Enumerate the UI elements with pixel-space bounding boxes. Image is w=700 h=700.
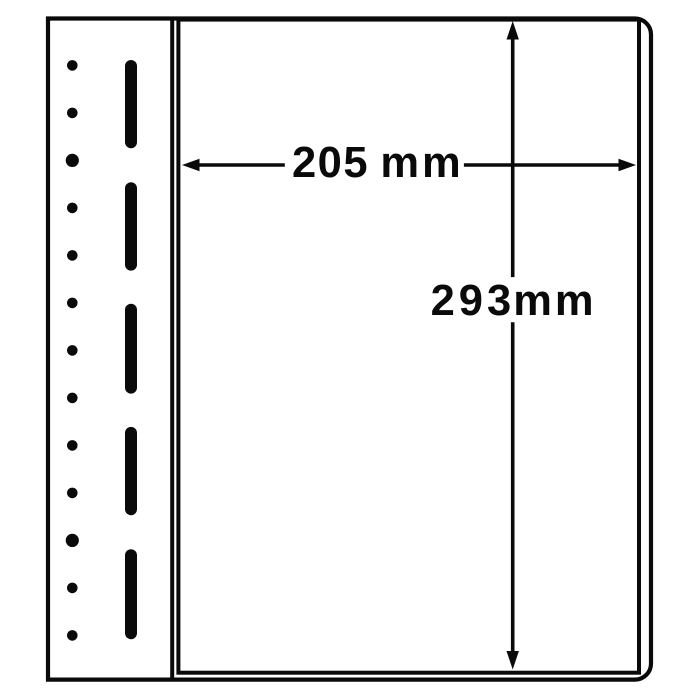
svg-text:205: 205 — [292, 139, 369, 187]
svg-text:mm: mm — [513, 277, 596, 325]
svg-text:293: 293 — [431, 277, 516, 325]
svg-text:mm: mm — [380, 139, 463, 187]
